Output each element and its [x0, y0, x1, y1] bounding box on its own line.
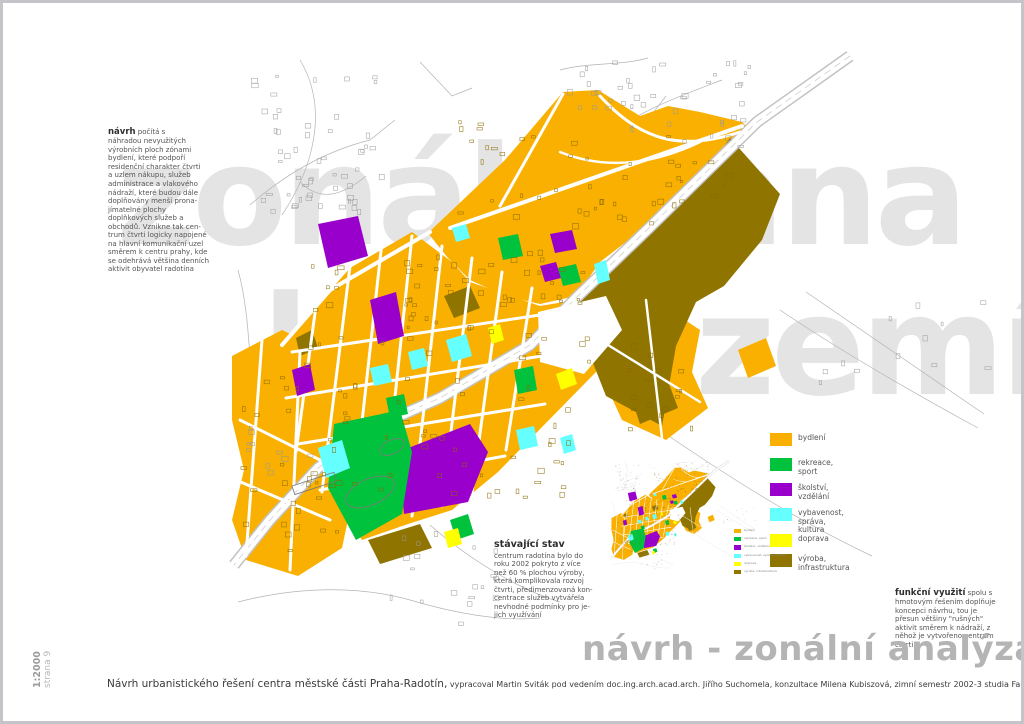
legend-swatch-doprava	[770, 534, 792, 547]
inset-legend-swatch	[734, 554, 741, 558]
legend-label: školství, vzdělání	[798, 484, 829, 501]
note-stav-heading: stávající stav	[494, 539, 610, 551]
note-navrh-heading: návrh	[108, 127, 136, 137]
inset-legend-swatch	[734, 529, 741, 533]
note-stav-body: centrum radotína bylo do roku 2002 pokry…	[494, 552, 593, 620]
inset-legend-label: výroba, infrastruktura	[744, 570, 777, 573]
scale-box: 1:2000 strana 9	[32, 651, 54, 688]
legend-label: výroba, infrastruktura	[798, 555, 850, 572]
inset-legend-label: rekreace, sport	[744, 537, 767, 540]
inset-legend-swatch	[734, 570, 741, 574]
legend-label: bydlení	[798, 434, 826, 443]
legend-swatch-bydleni	[770, 433, 792, 446]
inset-legend-swatch	[734, 537, 741, 541]
legend: bydlení rekreace, sport školství, vzdělá…	[770, 430, 930, 580]
caption-credits: vypracoval Martin Sviták pod vedením doc…	[447, 680, 1024, 689]
caption: Návrh urbanistického řešení centra městs…	[107, 672, 1024, 691]
legend-swatch-skolstvi	[770, 483, 792, 496]
legend-swatch-rekreace	[770, 458, 792, 471]
legend-swatch-vybavenost	[770, 508, 792, 521]
note-stavajici-stav: stávající stavcentrum radotína bylo do r…	[494, 539, 610, 620]
page-number-label: strana 9	[43, 651, 54, 688]
legend-label: rekreace, sport	[798, 459, 833, 476]
scale-label: 1:2000	[32, 651, 43, 688]
inset-legend-label: vybavenost, správa, kultura	[744, 554, 786, 557]
inset-legend-label: školství, vzdělání	[744, 545, 770, 548]
inset-legend-swatch	[734, 562, 741, 566]
note-navrh-body: počítá s náhradou nevyužitých výrobních …	[108, 128, 209, 273]
inset-legend-swatch	[734, 545, 741, 549]
caption-main: Návrh urbanistického řešení centra městs…	[107, 678, 447, 690]
page-title: návrh - zonální analýza	[582, 629, 1024, 669]
inset-legend-label: doprava	[744, 562, 756, 565]
legend-label: doprava	[798, 535, 829, 544]
note-funk-heading: funkční využití	[895, 588, 965, 598]
legend-label: vybavenost, správa, kultura	[798, 509, 844, 535]
note-navrh: návrh počítá s náhradou nevyužitých výro…	[108, 127, 220, 274]
inset-legend-label: bydlení	[744, 529, 755, 532]
